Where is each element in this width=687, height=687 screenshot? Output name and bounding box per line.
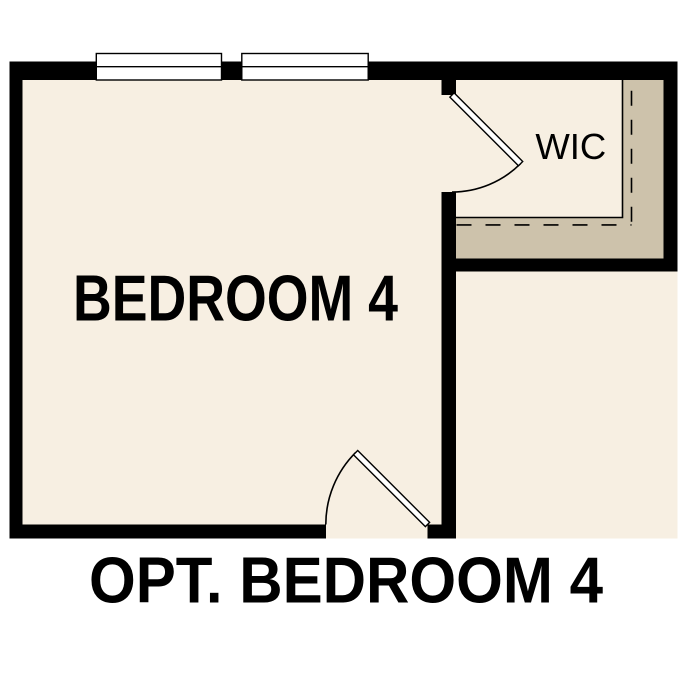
svg-text:OPT. BEDROOM 4: OPT. BEDROOM 4 — [89, 544, 603, 617]
svg-text:BEDROOM 4: BEDROOM 4 — [73, 262, 398, 335]
svg-text:WIC: WIC — [535, 126, 606, 167]
